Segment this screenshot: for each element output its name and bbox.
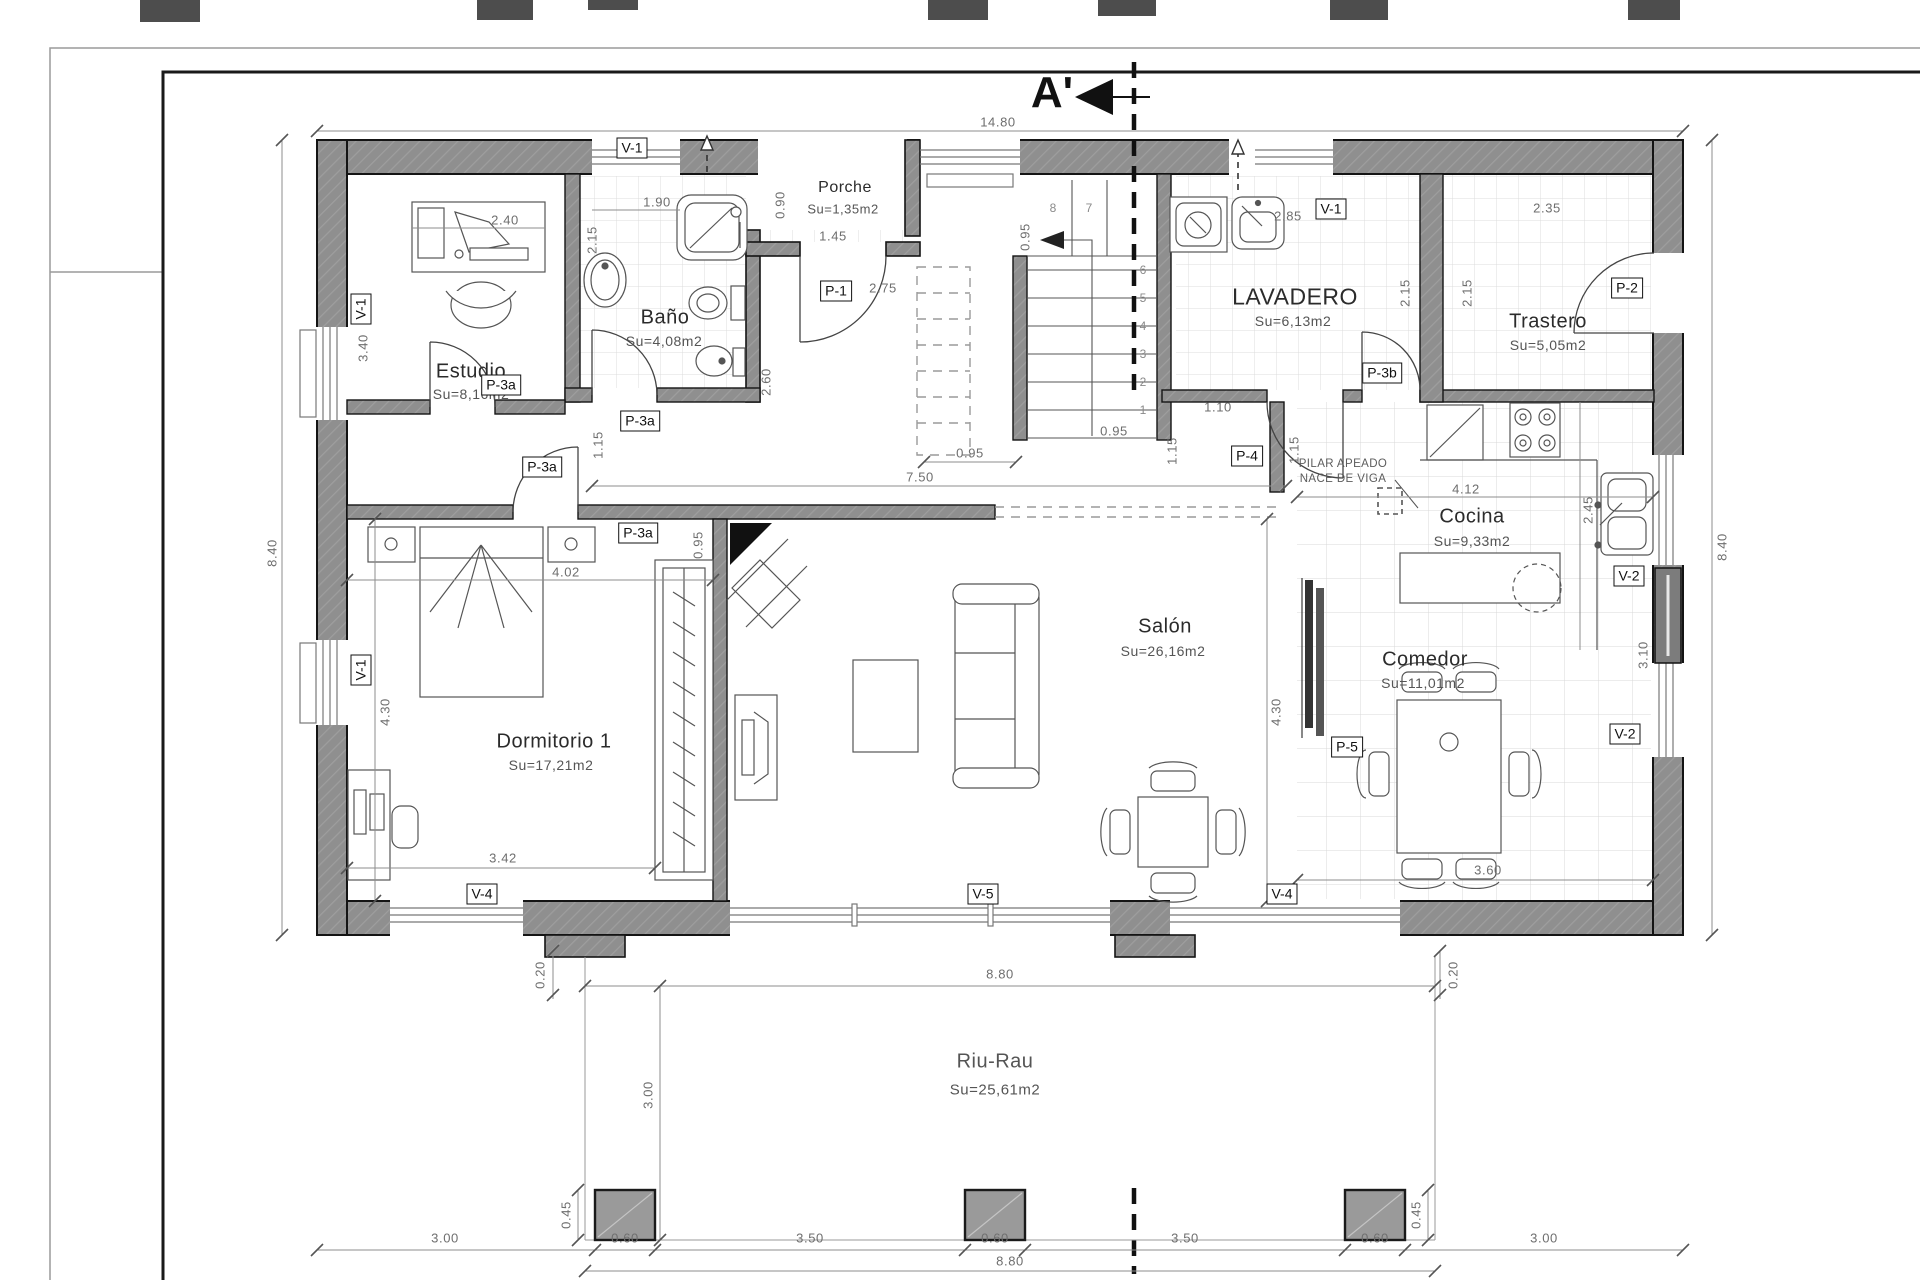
- riurau-structure: [545, 935, 1435, 1240]
- cropped-artifact: [140, 0, 1680, 22]
- sliding-door: [1302, 578, 1324, 738]
- floorplan-drawing: [0, 0, 1920, 1280]
- floorplan-page: A' Porche Su=1,35m2 Baño Su=4,08m2 Estud…: [0, 0, 1920, 1280]
- stairs: [1027, 180, 1157, 438]
- section-arrow-icon: [1075, 79, 1150, 115]
